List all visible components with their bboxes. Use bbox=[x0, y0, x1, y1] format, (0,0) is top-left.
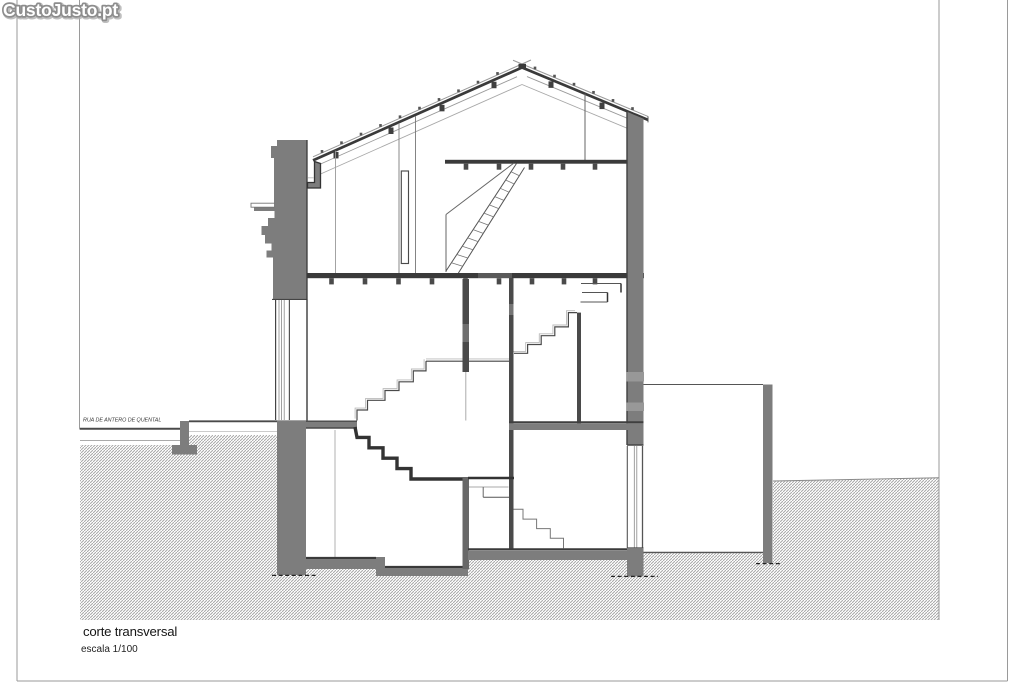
svg-text:CustoJusto.pt: CustoJusto.pt bbox=[3, 0, 118, 20]
svg-text:corte transversal: corte transversal bbox=[83, 624, 177, 639]
svg-text:escala 1/100: escala 1/100 bbox=[81, 644, 138, 655]
svg-text:RUA DE ANTERO DE QUENTAL: RUA DE ANTERO DE QUENTAL bbox=[83, 418, 161, 424]
